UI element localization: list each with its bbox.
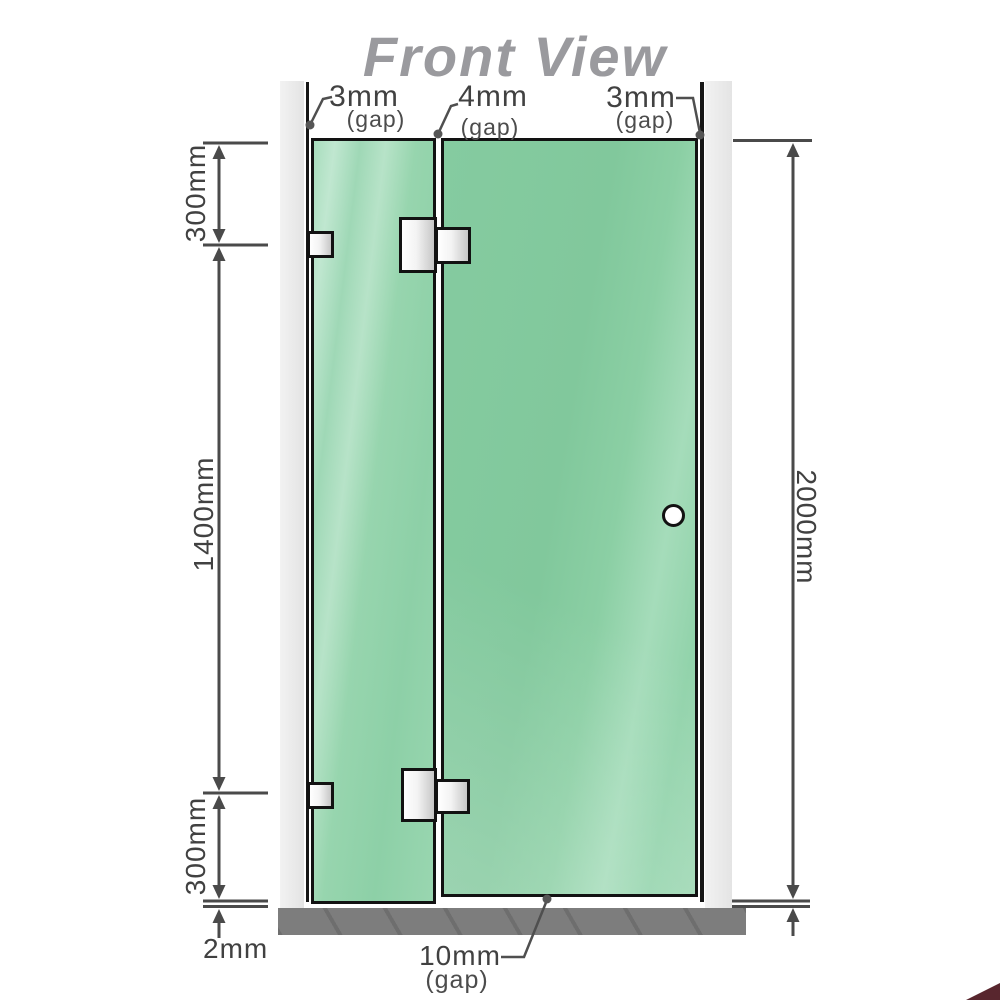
wall-channel-right — [705, 81, 732, 908]
hinge-bottom-door-plate — [435, 779, 470, 814]
hinge-bottom-main-plate — [401, 768, 437, 822]
annotation-door-gap-label: (gap) — [425, 966, 488, 995]
hinge-top-door-plate — [435, 227, 471, 264]
wall-channel-left — [280, 81, 304, 908]
door-knob — [662, 504, 685, 527]
diagram-canvas: Front View — [0, 0, 1000, 1000]
dimension-label-middle-1400mm: 1400mm — [188, 457, 220, 572]
glass-door-panel — [441, 138, 698, 897]
dimension-label-top-300mm: 300mm — [180, 144, 212, 242]
wall-bracket-bottom — [307, 782, 334, 809]
annotation-floor-gap-2mm: 2mm — [203, 933, 268, 965]
annotation-gap-middle-value: 4mm — [458, 80, 528, 114]
hinge-top-main-plate — [399, 217, 437, 273]
annotation-gap-right-label: (gap) — [616, 107, 675, 134]
wall-bracket-top — [307, 231, 334, 258]
annotation-gap-left-label: (gap) — [347, 106, 406, 133]
annotation-gap-middle-label: (gap) — [461, 114, 520, 141]
wall-line-left — [306, 82, 309, 902]
wall-line-right — [700, 82, 704, 902]
corner-watermark-fragment — [966, 983, 1000, 1000]
dimension-label-total-2000mm: 2000mm — [790, 470, 822, 585]
dimension-label-bottom-300mm: 300mm — [180, 797, 212, 895]
floor-base — [278, 908, 746, 935]
